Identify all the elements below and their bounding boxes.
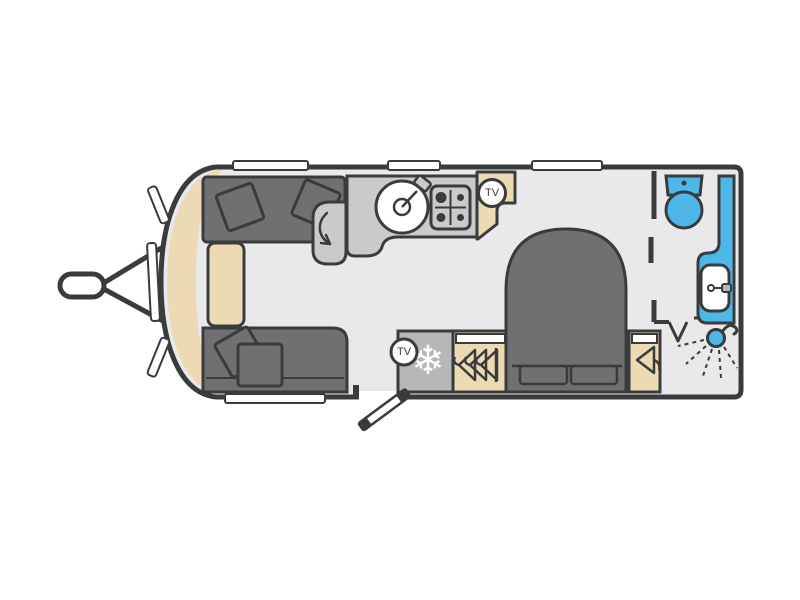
- tv-point-rear: TV: [391, 339, 417, 365]
- bedside-cabinet: [629, 331, 660, 392]
- window-front-curve-top: [147, 186, 170, 225]
- window-top-bedroom: [532, 161, 602, 170]
- sofa-cushion: [238, 344, 282, 386]
- worktop-flap: [313, 202, 346, 264]
- lounge-table: [208, 243, 244, 326]
- toilet: [666, 176, 702, 228]
- toilet-bowl: [666, 192, 702, 228]
- basin-drain: [708, 285, 714, 291]
- worktop-extension: [313, 202, 346, 264]
- tv-label: TV: [485, 187, 500, 199]
- tv-label: TV: [397, 346, 412, 358]
- washbasin: [701, 265, 731, 311]
- window-front-curve-bottom: [147, 337, 170, 377]
- pillow: [520, 366, 567, 384]
- caravan-floorplan: TV ❄ TV: [0, 0, 800, 600]
- burner: [436, 192, 447, 203]
- cabinet-shelf: [632, 334, 657, 343]
- window-top-front: [233, 161, 308, 170]
- hob-icon: [431, 186, 470, 229]
- cistern-button: [682, 181, 687, 186]
- floorplan-svg: TV ❄ TV: [0, 0, 800, 600]
- window-bottom-front: [225, 394, 325, 403]
- basin-tap-icon: [722, 284, 731, 292]
- tv-point-front: TV: [479, 180, 506, 207]
- tow-hitch-icon: [60, 274, 104, 297]
- door-jamb: [353, 385, 359, 395]
- burner: [457, 194, 464, 201]
- window-front-curve-middle: [147, 243, 160, 321]
- pillow: [571, 366, 617, 384]
- burner: [457, 214, 464, 221]
- wardrobe-shelf: [456, 334, 505, 343]
- island-bed: [506, 229, 626, 392]
- burner: [437, 213, 446, 222]
- window-top-kitchen: [388, 161, 440, 170]
